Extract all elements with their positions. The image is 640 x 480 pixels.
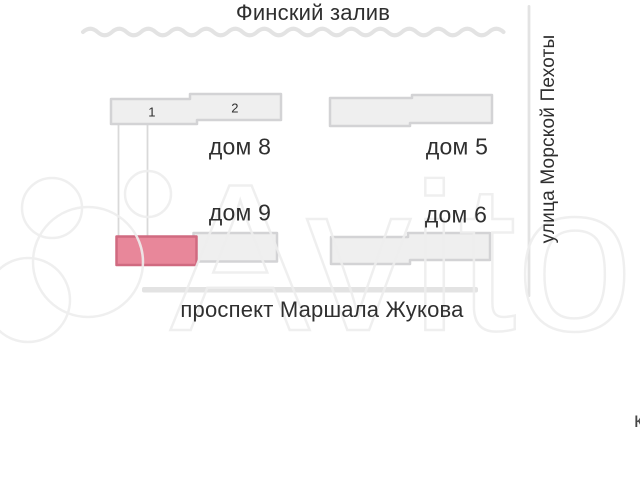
clipped-edge-text: к bbox=[634, 409, 640, 433]
unit-2-label: 2 bbox=[231, 101, 238, 116]
building-dom-8 bbox=[111, 94, 281, 124]
watermark-text: Avito bbox=[170, 140, 633, 375]
unit-1-label: 1 bbox=[148, 105, 155, 120]
building-dom-5 bbox=[330, 95, 492, 126]
dom-5-label: дом 5 bbox=[426, 134, 488, 161]
dom-8-label: дом 8 bbox=[209, 134, 271, 161]
dom-9-label: дом 9 bbox=[209, 200, 271, 227]
dom-6-label: дом 6 bbox=[425, 202, 487, 229]
right-street-label: улица Морской Пехоты bbox=[538, 35, 560, 244]
watermark-circle-2 bbox=[0, 258, 70, 342]
bottom-street-label: проспект Маршала Жукова bbox=[180, 297, 463, 323]
waterfront-label: Финский залив bbox=[236, 0, 390, 26]
waterfront-wave-line bbox=[83, 29, 504, 36]
site-plan-map: Avito Финский залив улица Морской Пехоты… bbox=[0, 0, 640, 480]
